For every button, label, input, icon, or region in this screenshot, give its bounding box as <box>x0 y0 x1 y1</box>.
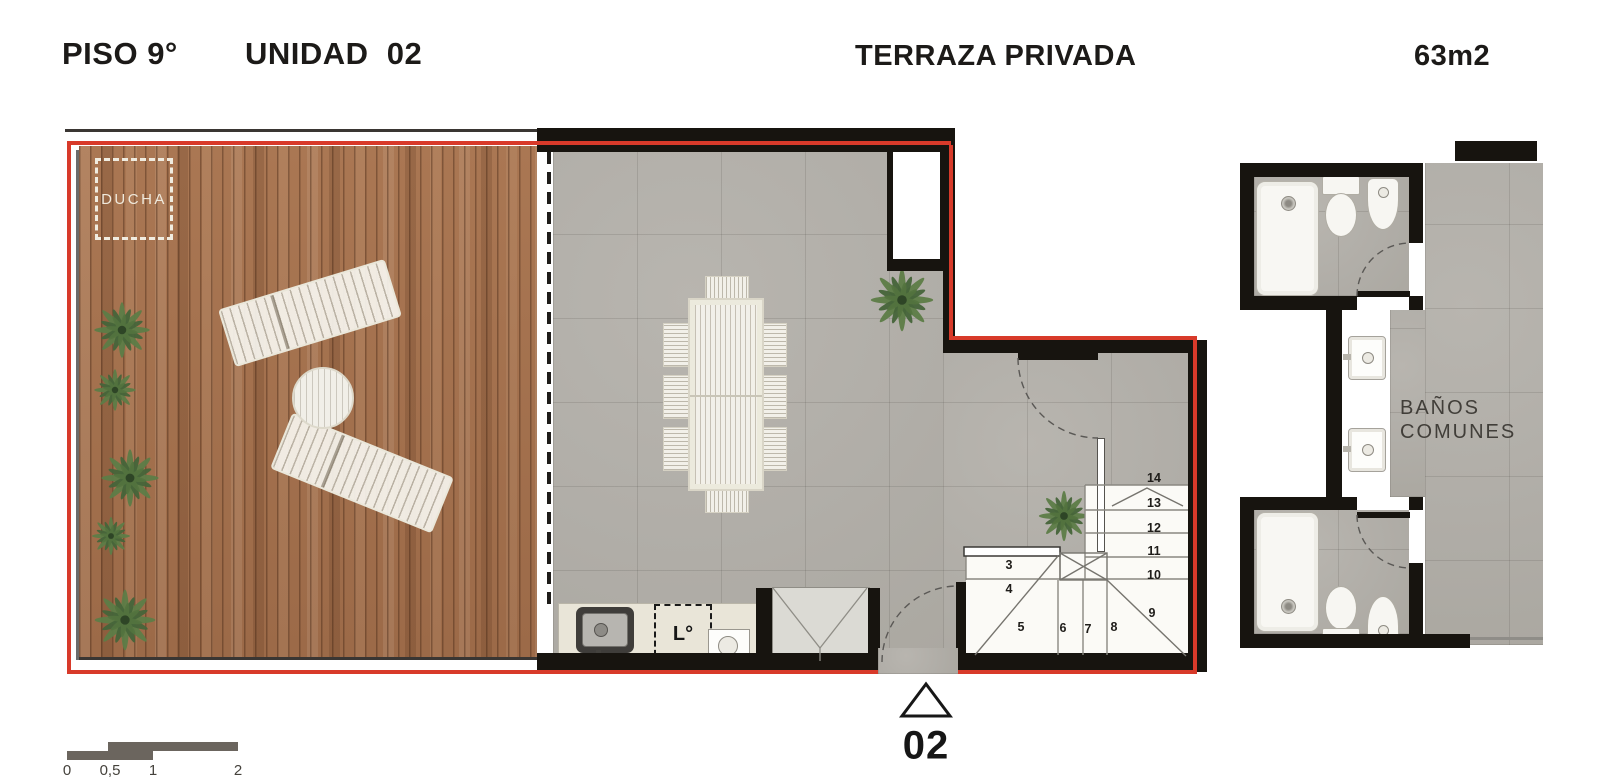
shower-area-outline: DUCHA <box>95 158 173 240</box>
common-baths-line1: BAÑOS <box>1400 396 1516 420</box>
entry-triangle-icon <box>902 684 950 716</box>
stair-step-number: 9 <box>1149 606 1156 620</box>
wash-basin <box>1348 428 1386 472</box>
plant <box>90 585 160 655</box>
stair-step-number: 13 <box>1147 496 1161 510</box>
zone-title: TERRAZA PRIVADA <box>855 40 1136 73</box>
common-baths-line2: COMUNES <box>1400 420 1516 444</box>
wall-top <box>537 128 955 152</box>
wall-right <box>1188 340 1207 672</box>
common-baths-label: BAÑOS COMUNES <box>1400 396 1516 444</box>
washer-label: L° <box>673 623 693 646</box>
wall-segment <box>1409 497 1423 510</box>
wall-segment <box>1240 163 1423 177</box>
dining-chair <box>663 427 691 471</box>
scale-tick-label: 0,5 <box>100 762 121 779</box>
lounge-chair-headrest <box>321 435 345 488</box>
boundary-red-segment <box>949 336 1197 340</box>
floor-edge-line <box>1470 637 1543 640</box>
stair-step-number: 4 <box>1006 582 1013 596</box>
wall-segment <box>943 340 1207 353</box>
wall-segment <box>1409 296 1423 310</box>
wall-segment <box>1240 497 1357 510</box>
lounge-chair-headrest <box>270 295 289 349</box>
boundary-red-bottom <box>67 670 1197 674</box>
scale-bar-lower <box>67 751 153 760</box>
plant <box>89 514 133 558</box>
dining-table <box>688 298 764 491</box>
boundary-red-segment <box>949 145 953 340</box>
stair-step-number: 6 <box>1060 621 1067 635</box>
basin-drain <box>1362 352 1374 364</box>
stair-step-number: 7 <box>1085 622 1092 636</box>
deck-top-line <box>65 129 537 132</box>
stair-balustrade <box>1097 438 1105 552</box>
deck-left-line <box>76 150 79 660</box>
stair-flight-start <box>966 547 1060 580</box>
wall-segment <box>1409 163 1423 243</box>
niche <box>893 152 940 259</box>
round-side-table <box>292 367 354 429</box>
stair-step-number: 14 <box>1147 471 1161 485</box>
stair-step-number: 8 <box>1111 620 1118 634</box>
shower-drain <box>1281 196 1296 211</box>
boundary-red-top <box>67 141 951 145</box>
boundary-red-right <box>1193 338 1197 672</box>
dining-table-seam <box>690 395 762 397</box>
shower-tray <box>1256 512 1319 632</box>
dining-chair <box>663 323 691 367</box>
shower-label: DUCHA <box>101 191 167 208</box>
scale-bar-upper <box>108 742 238 751</box>
stair-step-number: 5 <box>1018 620 1025 634</box>
scale-tick-label: 0 <box>63 762 71 779</box>
door-leaf <box>1018 353 1098 360</box>
stair-step-number: 10 <box>1147 568 1161 582</box>
plant <box>90 298 154 362</box>
unit-number-marker: 02 <box>903 724 950 769</box>
wash-basin <box>1348 336 1386 380</box>
shower-drain <box>1281 599 1296 614</box>
deck-tile-dashed-boundary <box>547 152 551 605</box>
palm-plant <box>866 264 938 336</box>
boundary-red-left <box>67 141 71 674</box>
bidet-tap <box>1378 187 1389 198</box>
wall-segment <box>1240 634 1470 648</box>
stair-landing <box>1060 553 1107 580</box>
scale-tick-label: 2 <box>234 762 242 779</box>
wall-segment <box>1240 163 1254 310</box>
door-leaf <box>1357 291 1410 297</box>
plant <box>97 445 163 511</box>
basin-tap <box>1343 354 1351 360</box>
floor-title: PISO 9° <box>62 36 178 72</box>
wall-segment <box>1240 296 1357 310</box>
wall-segment <box>1455 141 1537 161</box>
entry-threshold <box>878 648 958 674</box>
wall-bottom <box>537 653 878 670</box>
door-leaf <box>1357 512 1410 518</box>
plant <box>91 366 139 414</box>
dining-chair <box>663 375 691 419</box>
wall-segment <box>1240 497 1254 648</box>
faucet-icon <box>594 623 608 637</box>
toilet-bowl <box>1325 586 1357 630</box>
stair-step-number: 3 <box>1006 558 1013 572</box>
stair-step-number: 12 <box>1147 521 1161 535</box>
wall-bottom <box>958 653 1188 670</box>
shower-tray <box>1256 181 1319 296</box>
toilet-bowl <box>1325 193 1357 237</box>
unit-title: UNIDAD 02 <box>245 36 422 72</box>
basin-drain <box>1362 444 1374 456</box>
stair-step-number: 11 <box>1147 544 1160 558</box>
floorplan-canvas: PISO 9° UNIDAD 02 TERRAZA PRIVADA 63m2 D… <box>0 0 1600 782</box>
wall-segment <box>1326 310 1342 497</box>
basin-tap <box>1343 446 1351 452</box>
scale-tick-label: 1 <box>149 762 157 779</box>
area-value: 63m2 <box>1414 40 1490 73</box>
